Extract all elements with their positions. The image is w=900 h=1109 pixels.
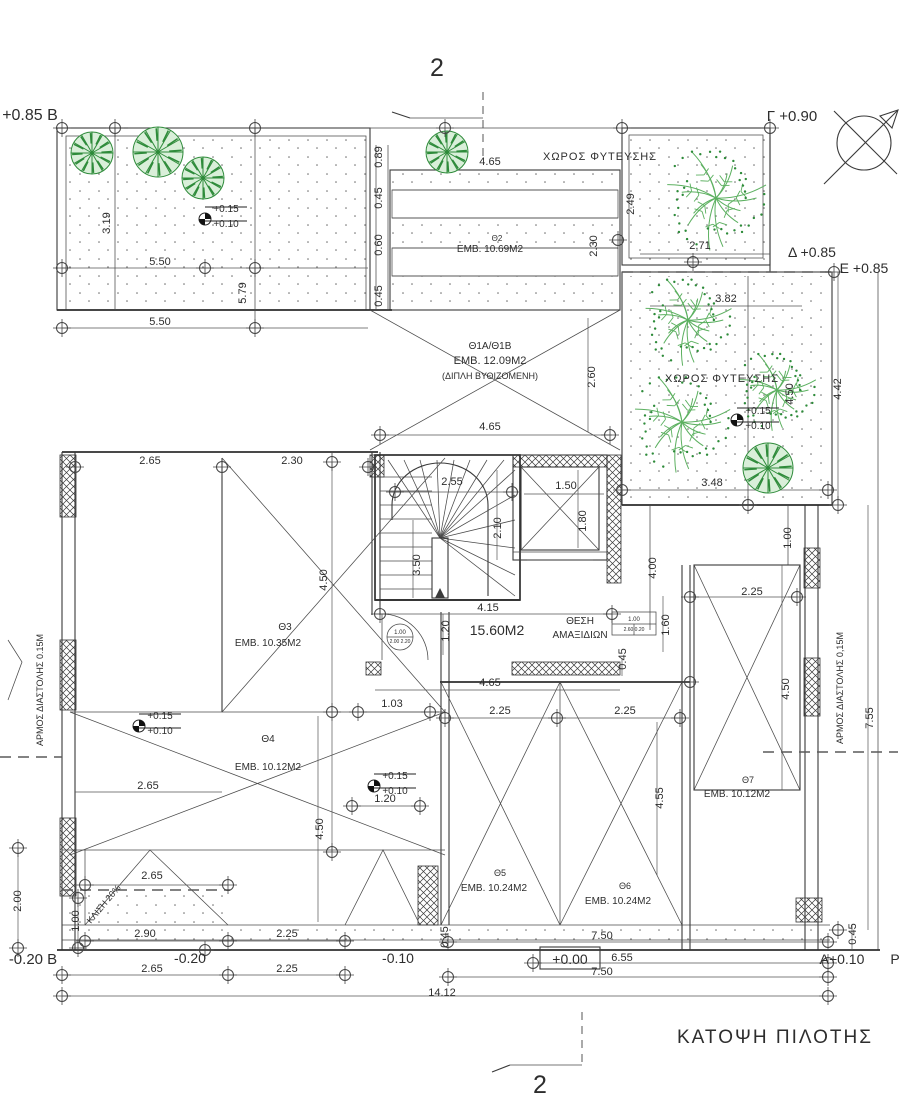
dim: 0.45 xyxy=(439,926,451,947)
dim: 4.65 xyxy=(479,677,500,689)
survey-marker xyxy=(53,987,71,1005)
space-id: Θ6 xyxy=(619,881,631,891)
dim: 0.45 xyxy=(373,285,385,306)
survey-marker xyxy=(246,319,264,337)
dim: 1.60 xyxy=(660,614,672,635)
pergola-theta2 xyxy=(390,170,620,310)
opening-tag: 1.00 xyxy=(628,617,640,623)
dim: 0.60 xyxy=(373,234,385,255)
survey-marker xyxy=(603,605,621,623)
dim: 4.50 xyxy=(314,818,326,839)
survey-marker xyxy=(788,588,806,606)
dim: 4.15 xyxy=(477,602,498,614)
dim: 2.60 xyxy=(586,366,598,387)
north-arrow xyxy=(824,110,898,184)
level-label: -0.10 xyxy=(382,950,414,966)
survey-marker xyxy=(386,483,404,501)
dim: 2.65 xyxy=(137,780,158,792)
dim: 7.55 xyxy=(864,707,876,728)
level-label: +0.15 xyxy=(382,771,408,782)
grid-point-label: Ε +0.85 xyxy=(840,260,889,276)
joint-leader xyxy=(8,640,22,700)
dim: 4.65 xyxy=(479,156,500,168)
dim: 2.90 xyxy=(134,928,155,940)
survey-marker xyxy=(336,966,354,984)
space-id: Θ4 xyxy=(261,734,275,745)
level-label: +0.10 xyxy=(213,219,239,230)
dim: 4.50 xyxy=(318,569,330,590)
level-label: +0.00 xyxy=(552,951,588,967)
dim: 1.20 xyxy=(440,620,452,641)
survey-marker xyxy=(548,709,566,727)
shrub-pinwheel xyxy=(71,132,113,174)
space-id: Θ1Α/Θ1Β xyxy=(469,341,512,352)
survey-marker xyxy=(343,797,361,815)
dim: 1.80 xyxy=(577,510,589,531)
grid-point-label: Δ +0.85 xyxy=(788,244,836,260)
level-label: +0.85 Β xyxy=(2,107,58,124)
survey-marker xyxy=(829,921,847,939)
dim: 2.25 xyxy=(614,705,635,717)
dim: 2.65 xyxy=(141,870,162,882)
dim: 4.42 xyxy=(832,378,844,399)
door-tag: 2.00 2.20 xyxy=(390,639,411,645)
grid-point-label: Γ +0.90 xyxy=(767,108,817,125)
dim: 0.45 xyxy=(847,923,859,944)
dim: 2.25 xyxy=(489,705,510,717)
dim: 4.00 xyxy=(647,557,659,578)
space-area: ΕΜΒ. 12.09Μ2 xyxy=(454,355,527,367)
dim: 2.25 xyxy=(276,928,297,940)
survey-marker xyxy=(411,797,429,815)
space-area: ΕΜΒ. 10.12Μ2 xyxy=(704,789,771,800)
grid-point-label: Ρ xyxy=(890,951,899,967)
dim: 2.30 xyxy=(588,235,600,256)
planting-area-right xyxy=(622,272,832,505)
space-label: ΘΕΣΗ xyxy=(566,616,594,627)
dim: 7.50 xyxy=(591,930,612,942)
dim: 2.65 xyxy=(139,455,160,467)
section-number: 2 xyxy=(430,54,444,82)
survey-marker xyxy=(219,966,237,984)
dim: 5.50 xyxy=(149,316,170,328)
space-id: Θ3 xyxy=(278,622,292,633)
opening-tag: 2.60 0.20 xyxy=(624,627,645,633)
survey-marker xyxy=(323,703,341,721)
survey-marker xyxy=(681,673,699,691)
dim: 6.55 xyxy=(611,952,632,964)
dim: 5.79 xyxy=(237,282,249,303)
survey-marker xyxy=(323,843,341,861)
dim: 3.48 xyxy=(701,477,722,489)
shrub-pinwheel xyxy=(182,157,224,199)
survey-marker xyxy=(76,876,94,894)
dim: 2.55 xyxy=(441,476,462,488)
dim: 2.00 xyxy=(12,890,24,911)
survey-marker xyxy=(213,458,231,476)
drawing-title: ΚΑΤΟΨΗ ΠΙΛΟΤΗΣ xyxy=(677,1027,873,1048)
dim: 2.49 xyxy=(625,193,637,214)
level-label: +0.15 xyxy=(147,711,173,722)
dim: 4.65 xyxy=(479,421,500,433)
joint-label: ΑΡΜΟΣ ΔΙΑΣΤΟΛΗΣ 0,15Μ xyxy=(835,632,845,744)
dim: 2.71 xyxy=(689,240,710,252)
dim: 2.10 xyxy=(492,517,504,538)
dim: 2.30 xyxy=(281,455,302,467)
level-label: +0.10 xyxy=(147,726,173,737)
dim: 3.19 xyxy=(101,212,113,233)
survey-marker xyxy=(819,987,837,1005)
survey-marker xyxy=(371,605,389,623)
dim: 0.45 xyxy=(373,187,385,208)
space-label: ΑΜΑΞΙΔΙΩΝ xyxy=(552,630,607,641)
shrub-pinwheel xyxy=(133,127,183,177)
space-area: 15.60Μ2 xyxy=(470,622,525,638)
level-label: +0.15 xyxy=(745,406,771,417)
survey-marker xyxy=(323,453,341,471)
survey-marker xyxy=(69,939,87,957)
floor-plan-drawing: +0.85 ΒΓ +0.90Δ +0.85Ε +0.85Α+0.10Ρ-0.20… xyxy=(0,0,900,1109)
dim: 7.50 xyxy=(591,966,612,978)
dim: 3.50 xyxy=(411,554,423,575)
dim: 2.25 xyxy=(276,963,297,975)
survey-marker xyxy=(681,588,699,606)
space-area: ΕΜΒ. 10.69Μ2 xyxy=(457,244,524,255)
level-label: +0.15 xyxy=(213,204,239,215)
joint-label: ΑΡΜΟΣ ΔΙΑΣΤΟΛΗΣ 0.15Μ xyxy=(35,634,45,746)
space-area: ΕΜΒ. 10.24Μ2 xyxy=(585,896,652,907)
dim: 0.45 xyxy=(617,648,629,669)
space-id: Θ7 xyxy=(742,775,754,785)
space-area: ΕΜΒ. 10.24Μ2 xyxy=(461,883,528,894)
dim: 1.03 xyxy=(381,698,402,710)
survey-marker xyxy=(9,839,27,857)
section-number: 2 xyxy=(533,1071,547,1099)
dim: 4.50 xyxy=(780,678,792,699)
dim: 1.00 xyxy=(782,527,794,548)
survey-marker xyxy=(503,483,521,501)
dim: 1.50 xyxy=(555,480,576,492)
floor-plan-canvas: +0.85 ΒΓ +0.90Δ +0.85Ε +0.85Α+0.10Ρ-0.20… xyxy=(0,0,900,1109)
survey-marker xyxy=(53,319,71,337)
dim: 4.50 xyxy=(784,383,796,404)
dim: 3.82 xyxy=(715,293,736,305)
dim: 5.50 xyxy=(149,256,170,268)
survey-marker xyxy=(524,954,542,972)
dim: 4.55 xyxy=(654,787,666,808)
survey-marker xyxy=(219,876,237,894)
door-tag: 1.00 xyxy=(394,630,406,636)
level-label: -0.20 xyxy=(174,950,206,966)
dim: 14.12 xyxy=(428,987,456,999)
dim: 1.20 xyxy=(374,793,395,805)
space-id: Θ2 xyxy=(492,234,503,243)
survey-marker xyxy=(819,968,837,986)
survey-marker xyxy=(439,968,457,986)
shrub-pinwheel xyxy=(426,131,468,173)
level-label: +0.10 xyxy=(745,421,771,432)
space-note: (ΔΙΠΛΗ ΒΥΘΙΖΟΜΕΝΗ) xyxy=(442,371,538,381)
dim: 1.00 xyxy=(70,910,82,931)
space-area: ΕΜΒ. 10.35Μ2 xyxy=(235,638,302,649)
grid-point-label: Α+0.10 xyxy=(820,951,865,967)
space-id: Θ5 xyxy=(494,868,506,878)
dim: 2.25 xyxy=(741,586,762,598)
space-area: ΕΜΒ. 10.12Μ2 xyxy=(235,762,302,773)
area-label: ΧΩΡΟΣ ΦΥΤΕΥΣΗΣ xyxy=(543,151,657,163)
dim: 2.65 xyxy=(141,963,162,975)
elevator-shaft xyxy=(513,455,607,560)
area-label: ΧΩΡΟΣ ΦΥΤΕΥΣΗΣ xyxy=(665,373,779,385)
shrub-pinwheel xyxy=(743,443,793,493)
dim: 0.89 xyxy=(373,146,385,167)
survey-marker xyxy=(53,966,71,984)
level-label: -0.20 Β xyxy=(9,951,57,968)
survey-marker xyxy=(349,703,367,721)
survey-marker xyxy=(671,709,689,727)
